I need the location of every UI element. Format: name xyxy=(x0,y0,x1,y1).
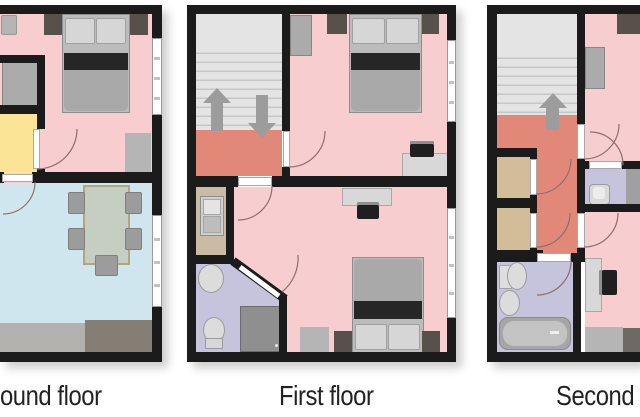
toilet-tank-icon xyxy=(205,338,223,349)
ground-floor-label: ound floor xyxy=(0,380,102,412)
wall xyxy=(530,248,537,262)
wall xyxy=(187,5,196,362)
fixture-icon xyxy=(1,15,17,35)
wall xyxy=(282,14,290,131)
room-closet-1 xyxy=(497,157,530,198)
wall xyxy=(573,262,581,352)
staircase xyxy=(497,14,577,115)
wash-basin-icon xyxy=(507,262,527,290)
nightstand-icon xyxy=(334,331,352,352)
dresser-icon xyxy=(125,133,151,175)
wall xyxy=(279,296,287,352)
nightstand-icon xyxy=(44,14,62,35)
door-icon xyxy=(537,253,571,262)
dresser-icon xyxy=(300,327,329,352)
wall xyxy=(487,5,497,362)
chair-icon xyxy=(125,192,142,214)
wall xyxy=(585,204,640,212)
cabinet-icon xyxy=(617,14,640,34)
wardrobe-icon xyxy=(290,15,312,56)
wall xyxy=(152,115,162,215)
wall xyxy=(187,5,456,14)
toilet-icon xyxy=(499,290,520,316)
door-icon xyxy=(238,177,272,186)
chair-icon xyxy=(68,192,85,214)
wardrobe-icon xyxy=(2,62,40,107)
wall xyxy=(196,255,234,264)
wall xyxy=(187,352,456,362)
window-icon xyxy=(447,208,456,318)
bathtub-icon xyxy=(499,317,571,350)
door-icon xyxy=(589,161,622,169)
wall xyxy=(37,55,45,129)
wall xyxy=(622,161,640,169)
double-bed-icon xyxy=(352,257,424,354)
wall xyxy=(32,172,152,183)
room-closet-2 xyxy=(497,208,530,250)
wall xyxy=(272,176,447,187)
fixture-icon xyxy=(626,169,640,204)
shower-icon xyxy=(240,306,283,352)
toilet-icon xyxy=(589,184,610,205)
wall xyxy=(530,195,537,213)
wall xyxy=(530,148,537,159)
chair-icon xyxy=(125,228,142,250)
wall xyxy=(577,159,585,213)
wall xyxy=(571,253,585,262)
dresser-icon xyxy=(623,328,640,352)
chair-icon xyxy=(68,228,85,250)
hallway xyxy=(537,148,577,253)
floor-plans-figure: { "figure": {"type": "house-floor-plans"… xyxy=(0,0,640,417)
door-icon xyxy=(2,174,33,182)
wall xyxy=(447,122,456,208)
desk-chair-icon xyxy=(357,202,379,219)
second-floor-plan xyxy=(487,5,640,362)
counter-icon xyxy=(85,320,152,352)
room-entrance-hall xyxy=(0,114,37,174)
dining-table-icon xyxy=(83,185,130,265)
kitchen-sink-icon xyxy=(200,196,224,236)
door-icon xyxy=(577,124,585,159)
double-bed-icon xyxy=(62,14,130,113)
door-icon xyxy=(530,213,537,248)
first-floor-label: First floor xyxy=(279,380,374,412)
window-icon xyxy=(152,215,162,307)
stairs-steps-icon xyxy=(497,50,577,115)
first-floor-plan xyxy=(187,5,456,362)
nightstand-icon xyxy=(422,331,440,352)
wall xyxy=(577,14,585,124)
door-icon xyxy=(530,159,537,195)
chair-icon xyxy=(95,255,118,276)
wall xyxy=(487,352,640,362)
desk-chair-icon xyxy=(599,270,617,295)
wall xyxy=(0,352,162,362)
window-icon xyxy=(152,38,162,115)
staircase xyxy=(196,14,282,130)
desk-chair-icon xyxy=(410,141,434,157)
landing xyxy=(196,130,282,176)
door-icon xyxy=(577,213,585,248)
door-icon xyxy=(283,131,290,167)
wall xyxy=(487,5,640,14)
wall xyxy=(152,307,162,362)
wardrobe-icon xyxy=(585,47,605,89)
wall xyxy=(152,5,162,38)
wall xyxy=(0,5,162,14)
wall xyxy=(447,5,456,40)
stairs-steps-icon xyxy=(196,45,282,130)
ground-floor-plan xyxy=(0,5,162,362)
nightstand-icon xyxy=(128,14,148,35)
second-floor-label: Second f xyxy=(556,380,640,412)
wall xyxy=(447,318,456,362)
landing xyxy=(497,115,577,148)
nightstand-icon xyxy=(420,14,439,34)
dresser-icon xyxy=(585,327,623,352)
nightstand-icon xyxy=(327,14,347,34)
door-icon xyxy=(33,129,40,169)
double-bed-icon xyxy=(349,14,422,113)
window-icon xyxy=(447,40,456,122)
counter-icon xyxy=(0,323,85,352)
wall xyxy=(226,187,234,264)
wash-basin-icon xyxy=(198,264,224,293)
wall xyxy=(196,176,238,187)
